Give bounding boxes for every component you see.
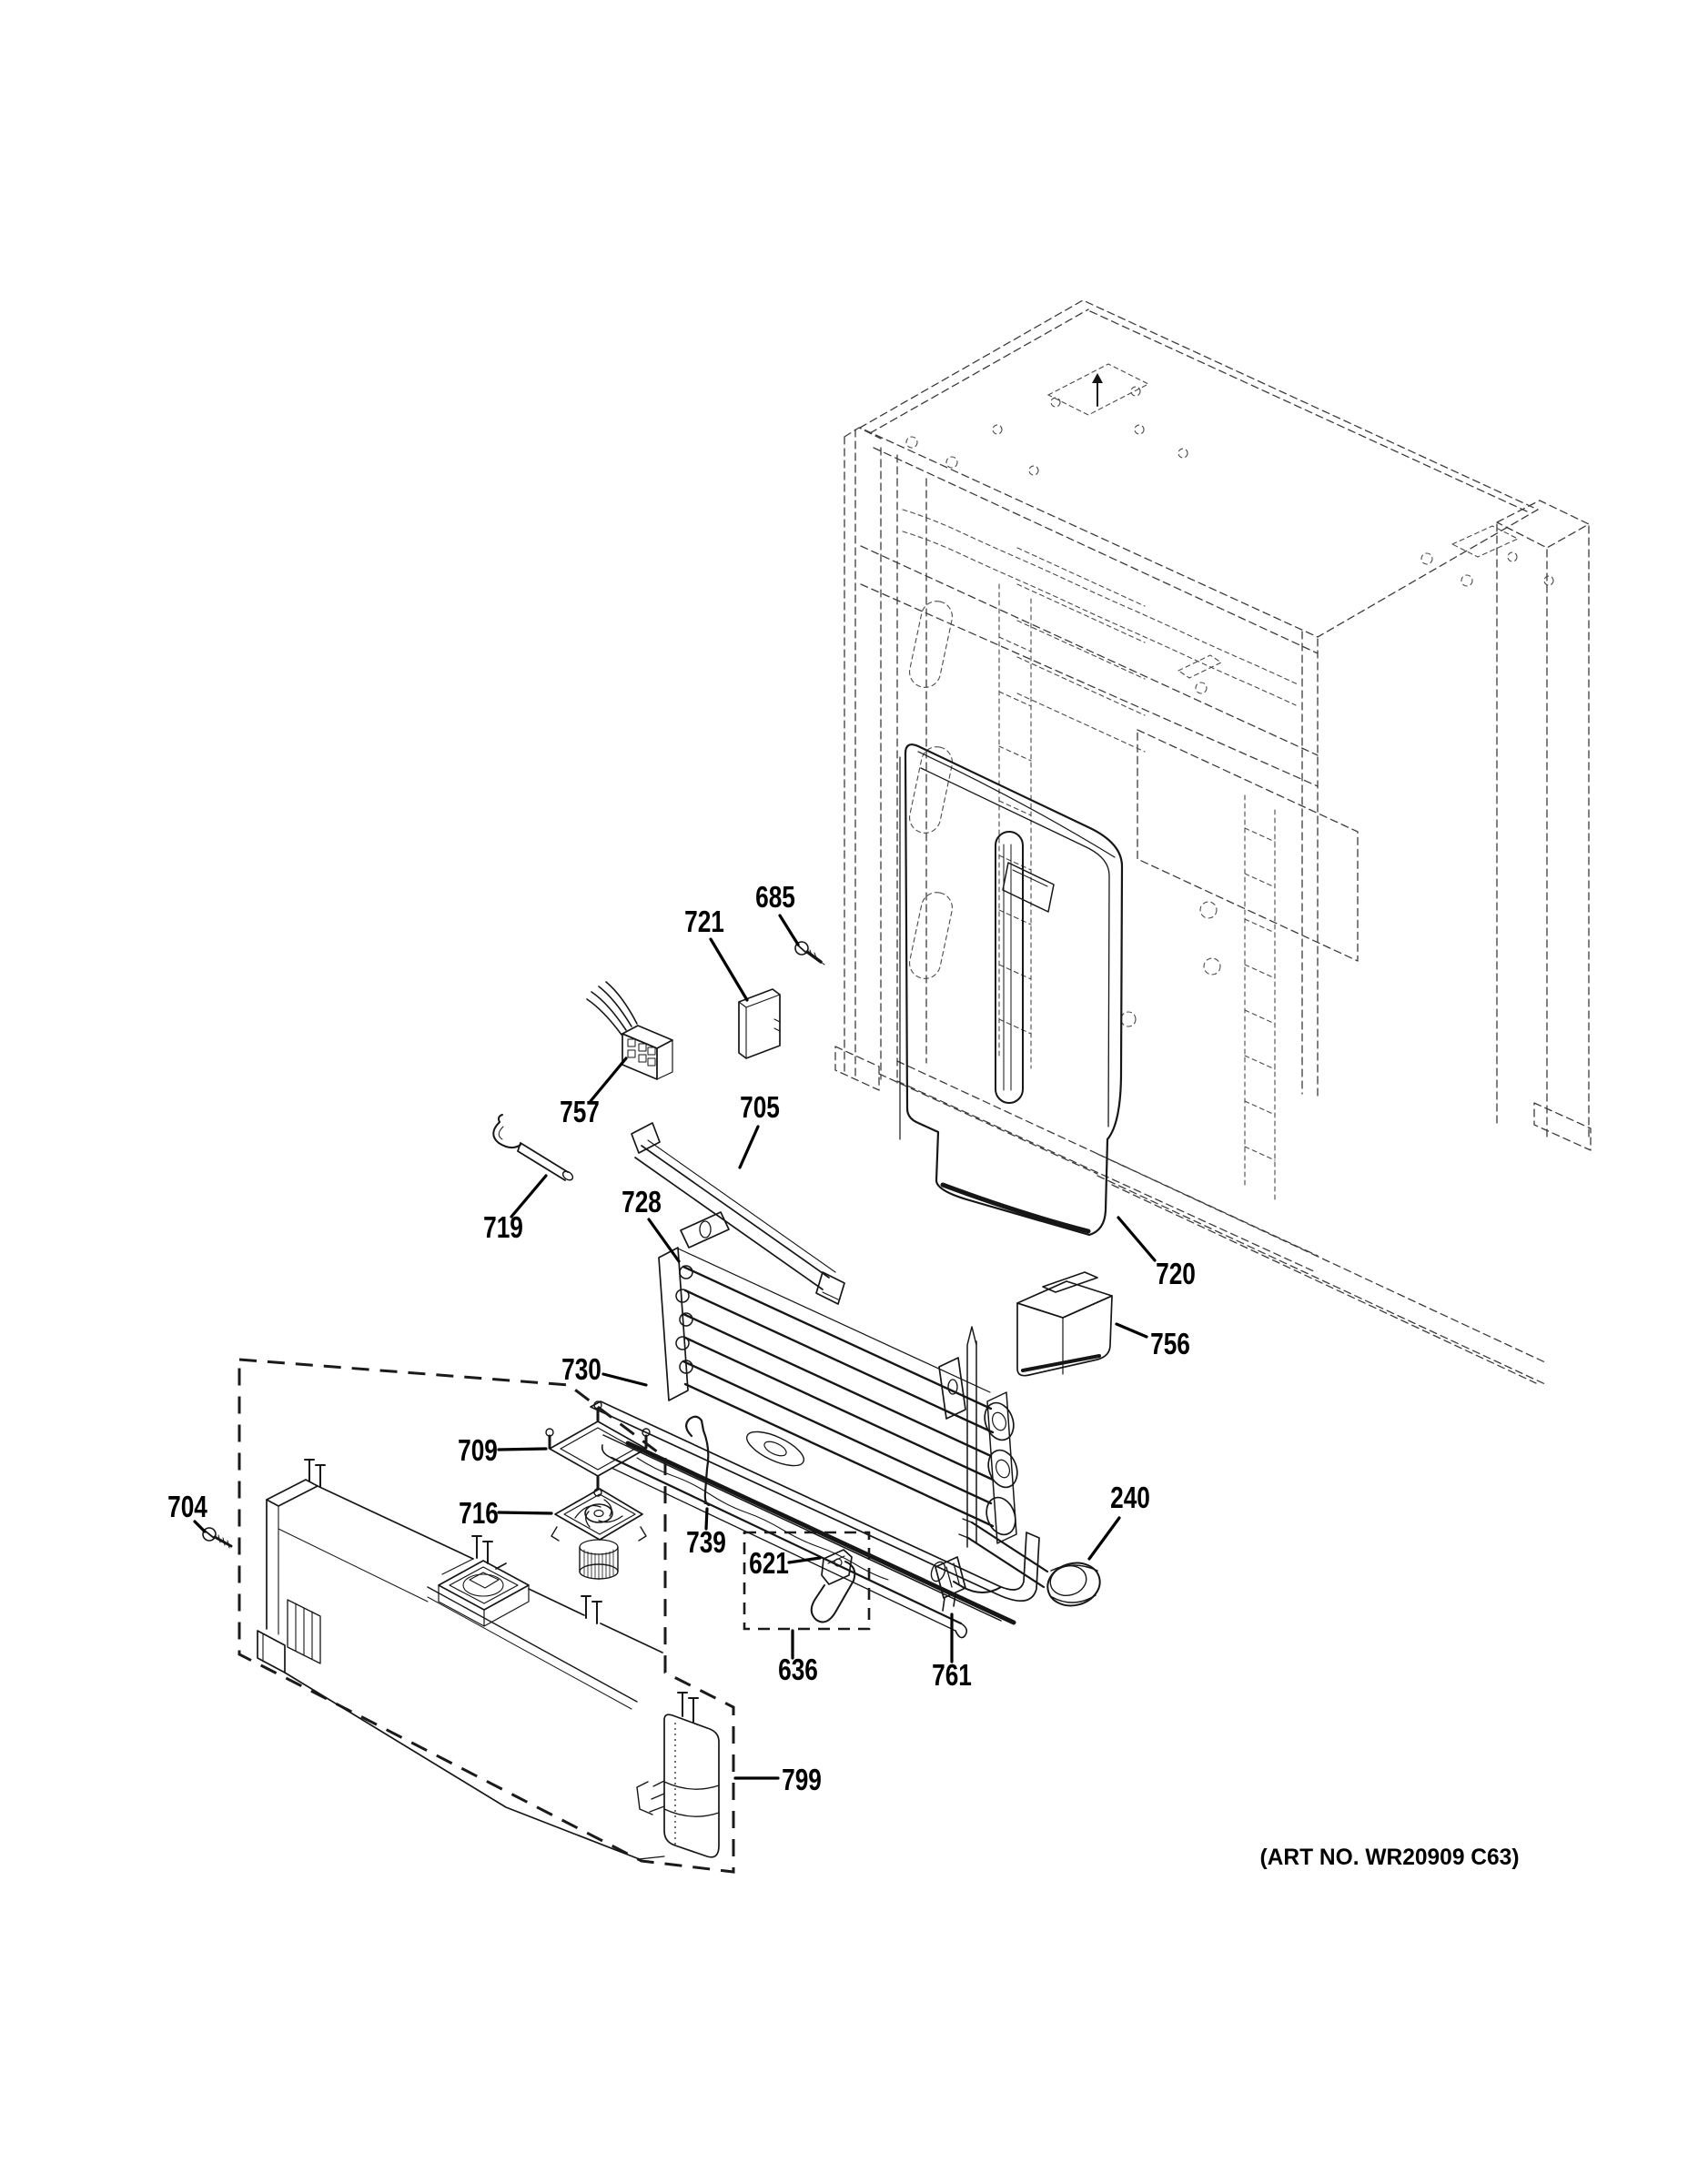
part-callout-730: 730 bbox=[561, 1352, 601, 1386]
part-callout-719: 719 bbox=[483, 1210, 523, 1244]
part-callout-704: 704 bbox=[167, 1490, 207, 1523]
exploded-parts-diagram: 6857217577197057287307047097167396216367… bbox=[0, 0, 1688, 2184]
evaporator-cover-720-drawing bbox=[900, 744, 1122, 1235]
leader-line-756 bbox=[1117, 1324, 1147, 1337]
art-number-label: (ART NO. WR20909 C63) bbox=[1260, 1845, 1520, 1870]
part-callout-739: 739 bbox=[686, 1525, 726, 1559]
part-callout-761: 761 bbox=[932, 1658, 972, 1692]
thermostat-cover-756-drawing bbox=[1017, 1272, 1112, 1376]
part-callout-709: 709 bbox=[458, 1433, 498, 1467]
part-callout-621: 621 bbox=[749, 1546, 789, 1580]
fan-grille-709-drawing bbox=[546, 1401, 650, 1496]
leader-line-685 bbox=[780, 915, 798, 945]
mounting-rail-705-drawing bbox=[632, 1123, 844, 1304]
part-callout-705: 705 bbox=[740, 1090, 780, 1124]
evaporator-fan-716-drawing bbox=[551, 1489, 646, 1580]
part-callout-720: 720 bbox=[1156, 1257, 1196, 1290]
part-callout-636: 636 bbox=[778, 1653, 818, 1686]
leader-line-709 bbox=[499, 1449, 546, 1450]
leader-line-716 bbox=[499, 1512, 551, 1513]
screw-704-drawing bbox=[203, 1528, 231, 1548]
part-callout-240: 240 bbox=[1110, 1481, 1150, 1514]
drain-tube-739-drawing bbox=[686, 1417, 712, 1505]
part-callout-716: 716 bbox=[459, 1496, 499, 1530]
part-callout-685: 685 bbox=[755, 880, 795, 914]
refrigerator-cabinet-outline bbox=[835, 300, 1591, 1385]
part-callout-721: 721 bbox=[684, 905, 724, 938]
part-callout-757: 757 bbox=[560, 1095, 600, 1128]
control-card-721-drawing bbox=[739, 989, 780, 1058]
callout-labels-layer: 6857217577197057287307047097167396216367… bbox=[167, 880, 1196, 1796]
leader-line-730 bbox=[603, 1374, 646, 1385]
part-callout-756: 756 bbox=[1150, 1327, 1190, 1360]
leader-line-721 bbox=[711, 939, 747, 1000]
leader-line-240 bbox=[1089, 1518, 1119, 1559]
part-callout-799: 799 bbox=[782, 1763, 822, 1796]
wire-connector-757-drawing bbox=[587, 982, 672, 1079]
drain-trough-730-drawing bbox=[591, 1401, 1039, 1638]
screw-685-drawing bbox=[795, 942, 824, 965]
leader-line-705 bbox=[740, 1127, 758, 1168]
leader-line-720 bbox=[1118, 1218, 1155, 1260]
part-callout-728: 728 bbox=[622, 1185, 662, 1218]
parts-diagram-page: 6857217577197057287307047097167396216367… bbox=[0, 0, 1688, 2184]
